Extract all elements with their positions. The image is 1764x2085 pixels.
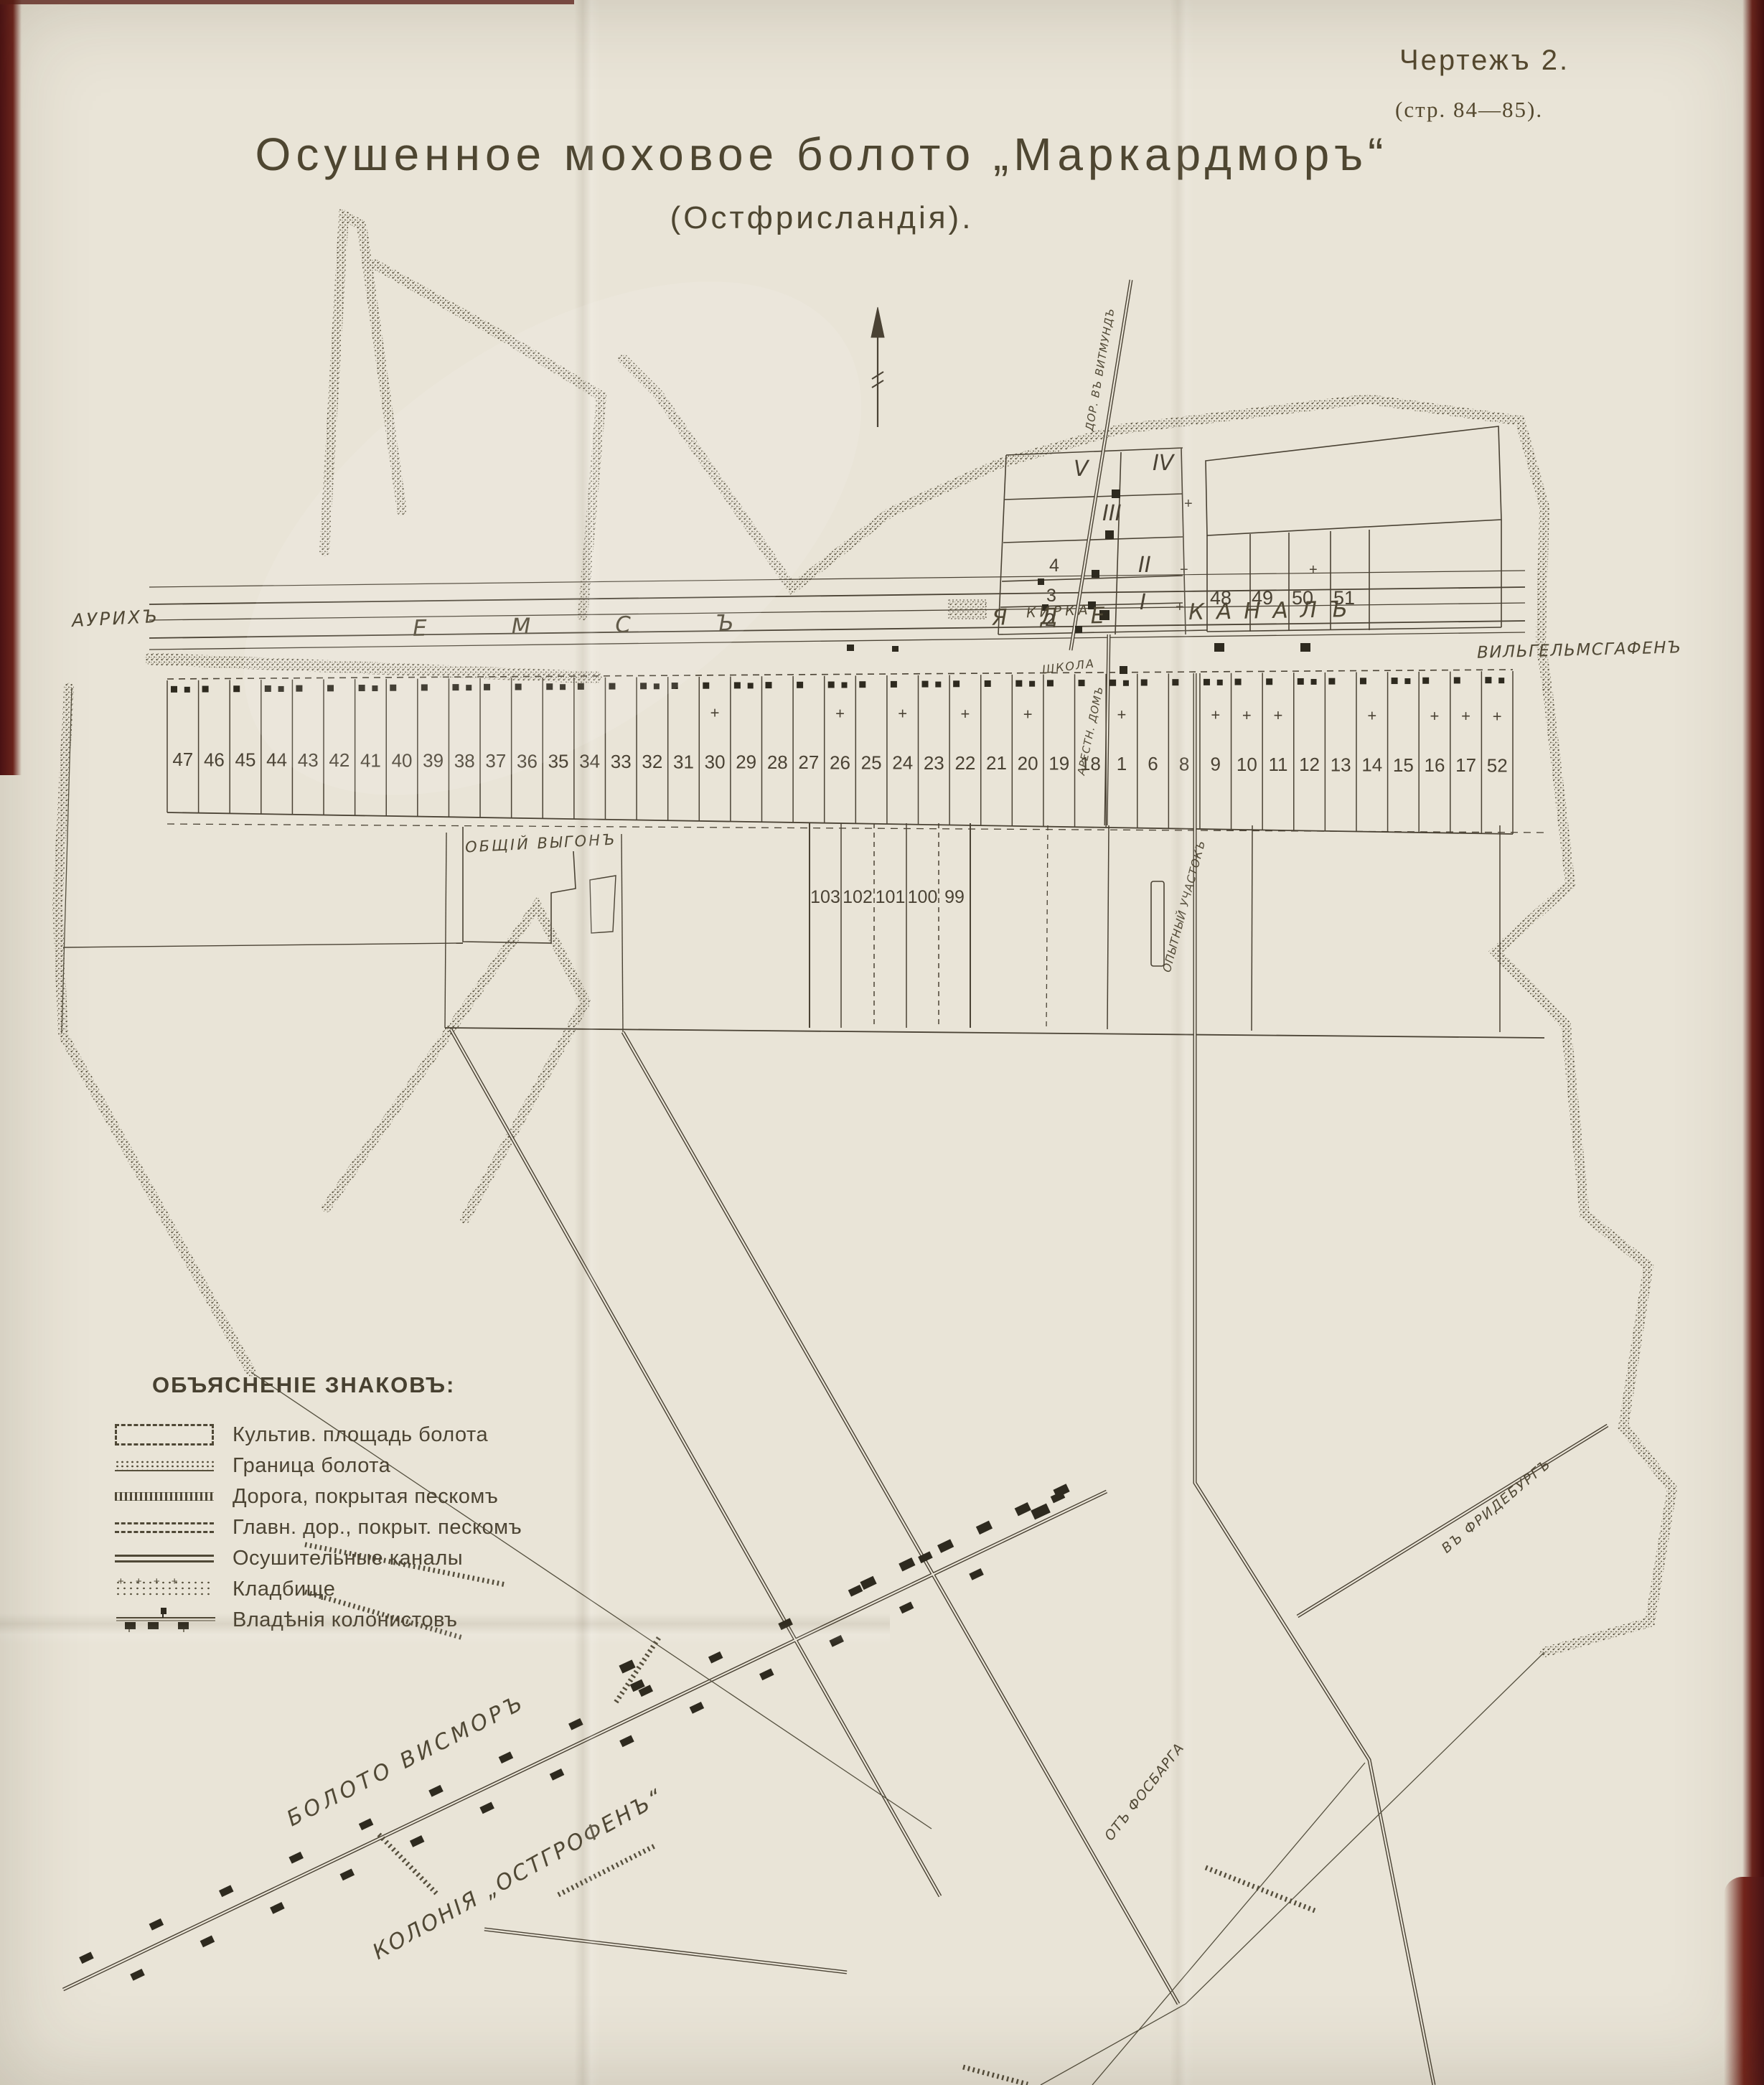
plot-number: 41	[360, 749, 381, 771]
legend-item-bog-border: Граница болота	[115, 1455, 522, 1476]
house-mark	[899, 1602, 914, 1614]
page-title: Осушенное моховое болото „Маркардморъ“	[0, 129, 1643, 179]
figure-pages: (стр. 84—85).	[1395, 98, 1543, 122]
plot-number: 12	[1299, 754, 1320, 775]
house-mark	[1404, 678, 1410, 684]
house-mark	[1204, 679, 1210, 685]
house-mark	[390, 685, 396, 691]
house-mark	[265, 685, 271, 692]
plot-roman-ii: II	[1138, 553, 1151, 578]
house-mark	[672, 683, 678, 689]
house-mark	[829, 1635, 844, 1647]
plot-number: 32	[642, 751, 662, 772]
svg-text:+: +	[1176, 599, 1184, 615]
plot-number: 6	[1148, 753, 1158, 774]
house-mark	[484, 684, 490, 690]
house-mark	[233, 685, 240, 692]
plot-number: 29	[736, 751, 756, 773]
plot-number: 9	[1211, 754, 1221, 775]
plot-number: 36	[517, 750, 538, 772]
house-mark	[759, 1669, 774, 1681]
plot-number: 16	[1425, 754, 1445, 776]
legend: ОБЪЯСНЕНІЕ ЗНАКОВЪ: Культив. площадь бол…	[115, 1372, 522, 1640]
cross-mark: +	[710, 703, 720, 721]
plot-number: 22	[954, 752, 975, 774]
plot-number: 37	[485, 750, 506, 772]
plot-roman-i: I	[1140, 590, 1146, 615]
dashed-rectangle-symbol	[115, 1424, 214, 1446]
house-mark	[359, 1818, 374, 1830]
house-mark	[515, 684, 522, 690]
house-mark	[690, 1702, 705, 1714]
plot-number: 28	[767, 751, 788, 773]
plot-number: 11	[1268, 754, 1287, 775]
dashed-double-road-symbol	[115, 1522, 214, 1533]
plot-number: 17	[1455, 754, 1476, 776]
house-mark	[1392, 678, 1398, 684]
house-mark	[578, 683, 584, 690]
plot-number: 21	[986, 752, 1007, 774]
house-mark	[452, 684, 459, 690]
plot-number: 42	[329, 749, 349, 771]
house-mark	[278, 686, 284, 692]
plot-number: 30	[705, 751, 726, 772]
house-mark	[546, 683, 553, 690]
house-mark	[619, 1735, 634, 1748]
plot-number: 52	[1487, 754, 1508, 776]
house-mark	[550, 1768, 565, 1781]
house-mark	[202, 686, 209, 693]
plot-number-50: 50	[1292, 587, 1313, 609]
plot-number: 35	[548, 750, 569, 772]
scanned-map-page: + + + + 47464544434241403938373635343332…	[0, 0, 1764, 2085]
legend-item-label: Граница болота	[233, 1454, 390, 1478]
plot-number: 40	[392, 749, 413, 771]
house-mark	[1109, 680, 1116, 686]
cross-mark: +	[1461, 707, 1470, 725]
plot-number: 15	[1393, 754, 1414, 776]
house-mark	[859, 681, 865, 688]
house-mark	[1328, 678, 1335, 685]
legend-item-label: Культив. площадь болота	[233, 1423, 488, 1447]
house-mark	[985, 680, 991, 687]
plot-number: 34	[579, 751, 600, 772]
house-mark	[1422, 678, 1429, 684]
house-mark	[848, 1585, 863, 1597]
house-mark	[748, 683, 754, 688]
map-drawing: + + + + 47464544434241403938373635343332…	[0, 0, 1764, 2085]
house-mark	[130, 1969, 145, 1981]
house-mark	[340, 1869, 355, 1881]
legend-item-sand-road: Дорога, покрытая пескомъ	[115, 1486, 522, 1507]
house-mark	[219, 1885, 234, 1897]
colonist-houses-symbol	[115, 1608, 222, 1632]
house-mark	[79, 1952, 94, 1964]
plot-number: 38	[454, 750, 475, 772]
house-mark	[1029, 681, 1035, 687]
cross-mark: +	[1211, 706, 1220, 724]
plot-number: 14	[1361, 754, 1382, 776]
house-mark	[372, 685, 377, 691]
house-mark	[1298, 678, 1304, 685]
page-subtitle: (Остфрисландія).	[0, 201, 1643, 235]
plot-number: 44	[266, 749, 287, 771]
label-aurich: АУРИХЪ	[71, 606, 159, 631]
house-mark	[1217, 680, 1223, 685]
house-mark	[428, 1785, 444, 1797]
house-mark	[609, 683, 615, 690]
house-mark	[1015, 1502, 1031, 1516]
plot-number: 20	[1018, 752, 1038, 774]
house-mark	[935, 682, 941, 688]
plot-number-51: 51	[1333, 587, 1355, 609]
plot-number: 102	[843, 887, 873, 907]
plot-number: 23	[924, 752, 944, 774]
house-mark	[708, 1651, 723, 1664]
house-mark	[922, 681, 929, 688]
cemetery-symbol	[115, 1580, 214, 1598]
plot-number: 46	[204, 749, 225, 770]
plot-number: 27	[798, 751, 819, 773]
plot-number: 100	[908, 887, 938, 907]
house-mark	[765, 682, 771, 688]
house-mark	[1047, 680, 1054, 686]
second-plot-row: 10310210110099	[810, 823, 970, 1028]
house-mark	[1141, 679, 1148, 685]
plot-number: 45	[235, 749, 256, 770]
legend-item-label: Дорога, покрытая пескомъ	[233, 1485, 498, 1509]
house-mark	[1015, 680, 1022, 687]
plot-number-2: 2	[1045, 610, 1055, 631]
house-mark	[976, 1521, 993, 1535]
house-mark	[410, 1835, 425, 1847]
house-mark	[1454, 677, 1460, 683]
plot-number: 103	[810, 887, 840, 907]
double-line-symbol	[115, 1555, 214, 1562]
house-mark	[466, 685, 472, 690]
house-mark	[200, 1936, 215, 1948]
plot-number: 99	[944, 887, 965, 907]
plot-strips: 474645444342414039383736353433323130+292…	[167, 671, 1513, 834]
house-mark	[1235, 679, 1242, 685]
north-arrow-icon	[871, 307, 884, 427]
legend-item-label: Кладбище	[233, 1578, 335, 1601]
house-mark	[703, 683, 709, 689]
legend-item-main-road: Главн. дор., покрыт. пескомъ	[115, 1517, 522, 1538]
cross-mark: +	[1242, 706, 1252, 724]
figure-label: Чертежъ 2.	[1399, 44, 1570, 76]
house-mark	[1498, 678, 1504, 683]
house-mark	[327, 685, 334, 691]
stipple-band-symbol	[115, 1460, 214, 1471]
legend-item-colonist-holdings: Владѣнія колонистовъ	[115, 1609, 522, 1631]
house-mark	[560, 684, 566, 690]
school-building	[1120, 666, 1127, 674]
cross-mark: +	[960, 705, 970, 723]
plot-number-49: 49	[1252, 587, 1273, 609]
plot-roman-iv: IV	[1153, 451, 1173, 476]
plot-number: 25	[861, 751, 882, 773]
plot-number: 47	[172, 749, 193, 770]
legend-item-cultivated-area: Культив. площадь болота	[115, 1424, 522, 1446]
house-mark	[937, 1539, 954, 1552]
plot-number: 31	[673, 751, 694, 772]
house-mark	[969, 1568, 984, 1580]
plot-number: 39	[423, 750, 444, 772]
house-mark	[899, 1557, 915, 1571]
plot-roman-iii: III	[1102, 501, 1122, 526]
field-borders	[63, 825, 1544, 1038]
hatched-road-symbol	[115, 1492, 214, 1501]
plot-number: 19	[1048, 753, 1069, 774]
cross-mark: +	[1274, 706, 1283, 724]
plot-number: 101	[876, 887, 906, 907]
legend-heading: ОБЪЯСНЕНІЕ ЗНАКОВЪ:	[152, 1372, 522, 1398]
house-mark	[149, 1918, 164, 1931]
house-mark	[296, 685, 302, 692]
plot-number: 43	[298, 749, 319, 771]
plot-roman-v: V	[1074, 456, 1089, 482]
house-mark	[734, 682, 741, 688]
house-mark	[270, 1902, 285, 1914]
house-mark	[654, 683, 660, 689]
svg-text:+: +	[1309, 562, 1318, 578]
legend-item-label: Осушительные каналы	[233, 1547, 463, 1570]
cross-mark: +	[1117, 706, 1127, 723]
cross-mark: +	[898, 705, 907, 723]
house-mark	[1311, 679, 1317, 685]
house-mark	[421, 684, 428, 690]
house-mark	[359, 685, 365, 691]
cross-mark: +	[835, 704, 845, 722]
plot-number: 1	[1117, 753, 1127, 774]
house-mark	[184, 687, 190, 693]
house-mark	[842, 683, 848, 688]
legend-item-label: Владѣнія колонистовъ	[233, 1608, 458, 1632]
cemetery-symbol	[949, 600, 986, 619]
house-mark	[288, 1852, 304, 1864]
house-mark	[860, 1576, 876, 1590]
legend-item-label: Главн. дор., покрыт. пескомъ	[233, 1516, 522, 1540]
plot-number: 33	[611, 751, 632, 772]
cross-mark: +	[1493, 707, 1502, 725]
house-mark	[171, 686, 177, 693]
house-mark	[891, 681, 897, 688]
svg-text:+: +	[1184, 496, 1193, 512]
house-mark	[1266, 678, 1272, 685]
plot-number: 26	[830, 751, 850, 773]
plot-number: 24	[892, 752, 913, 774]
legend-item-cemetery: Кладбище	[115, 1578, 522, 1600]
house-mark	[1172, 679, 1178, 685]
house-mark	[640, 683, 647, 689]
house-mark	[568, 1718, 583, 1730]
plot-number-48: 48	[1210, 587, 1231, 609]
cross-mark: +	[1367, 707, 1376, 725]
plot-number-3: 3	[1046, 586, 1056, 606]
plot-number: 10	[1237, 754, 1257, 775]
house-mark	[797, 682, 803, 688]
house-mark	[1079, 680, 1085, 686]
cross-mark: +	[1023, 705, 1033, 723]
legend-item-drainage-canals: Осушительные каналы	[115, 1547, 522, 1569]
svg-text:+: +	[1180, 562, 1188, 578]
plot-number: 13	[1331, 754, 1351, 775]
plot-number-4: 4	[1049, 556, 1059, 576]
experimental-plot-marker	[1151, 881, 1164, 966]
house-mark	[828, 682, 835, 688]
house-mark	[953, 680, 960, 687]
house-mark	[1485, 677, 1491, 683]
house-mark	[479, 1802, 494, 1814]
house-mark	[1123, 680, 1129, 686]
house-mark	[1360, 678, 1366, 684]
cross-mark: +	[1430, 707, 1440, 725]
plot-number: 8	[1179, 753, 1189, 774]
house-mark	[499, 1751, 514, 1763]
